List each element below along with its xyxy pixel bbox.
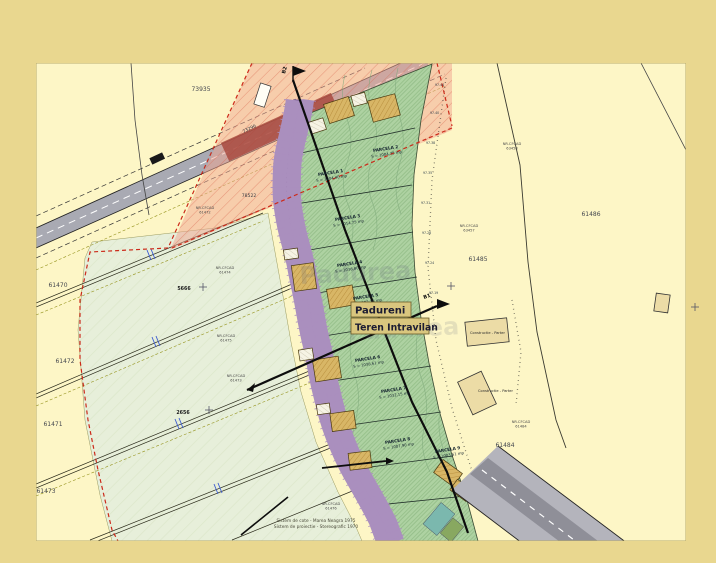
cadastral-number: 78522 xyxy=(242,193,257,199)
spot-elevation: 97.44 xyxy=(435,83,444,87)
nrcad-title: NR.CFCAD xyxy=(216,266,235,270)
nrcad-title: NR.CFCAD xyxy=(503,142,522,146)
spot-elevation: 97.35 xyxy=(423,171,432,175)
cadastral-number: 61471 xyxy=(43,421,62,428)
cadastral-number: 61473 xyxy=(36,488,55,495)
nrcad-number: 61473 xyxy=(230,379,241,383)
spot-elevation: 97.31 xyxy=(421,201,430,205)
spot-elevation: 97.19 xyxy=(429,291,438,295)
nrcad-number: 63457 xyxy=(463,229,474,233)
cadastral-number: 61484 xyxy=(495,442,514,449)
point-number: 5666 xyxy=(177,286,191,292)
spot-elevation: 97.24 xyxy=(425,261,434,265)
nrcad-number: 61474 xyxy=(219,271,231,275)
spot-elevation: 97.38 xyxy=(426,141,435,145)
nrcad-number: 61472 xyxy=(199,211,210,215)
spot-elevation: 97.40 xyxy=(430,111,439,115)
cadastral-number: 61485 xyxy=(468,256,487,263)
map-sheet: Padurea Padurea PARCELA 1S = 1004,40 mp … xyxy=(36,52,716,563)
nrcad-title: NR.CFCAD xyxy=(217,334,236,338)
nrcad-title: NR.CFCAD xyxy=(322,502,341,506)
nrcad-title: NR.CFCAD xyxy=(460,224,479,228)
plan-canvas: Padurea Padurea PARCELA 1S = 1004,40 mp … xyxy=(0,0,716,563)
nrcad-number: 61475 xyxy=(220,339,231,343)
construction-label: Constructie - Parter xyxy=(470,331,506,335)
nrcad-title: NR.CFCAD xyxy=(196,206,215,210)
cadastral-number: 61472 xyxy=(55,358,74,365)
nrcad-number: 61484 xyxy=(515,425,527,429)
nrcad-number: 61476 xyxy=(325,507,337,511)
cadastral-number: 73935 xyxy=(191,86,210,93)
spot-elevation: 97.28 xyxy=(422,231,431,235)
nrcad-title: NR.CFCAD xyxy=(227,374,246,378)
locality-name: Padureni xyxy=(355,306,405,317)
cadastral-plan: Padurea Padurea PARCELA 1S = 1004,40 mp … xyxy=(0,0,716,563)
legend-line2: Sistem de proiectie - Stereografic 1970 xyxy=(274,524,359,530)
nrcad-title: NR.CFCAD xyxy=(512,420,531,424)
cadastral-number: 61470 xyxy=(48,282,67,289)
point-number: 2656 xyxy=(176,410,190,416)
cadastral-number: 61486 xyxy=(581,211,600,218)
zone-type: Teren Intravilan xyxy=(355,323,438,334)
nrcad-number: 63458 xyxy=(506,147,518,151)
construction-label: Constructie - Parter xyxy=(478,389,514,393)
legend-line1: Sistem de cote - Marea Neagra 1975 xyxy=(277,518,356,524)
construction-3 xyxy=(654,293,670,313)
